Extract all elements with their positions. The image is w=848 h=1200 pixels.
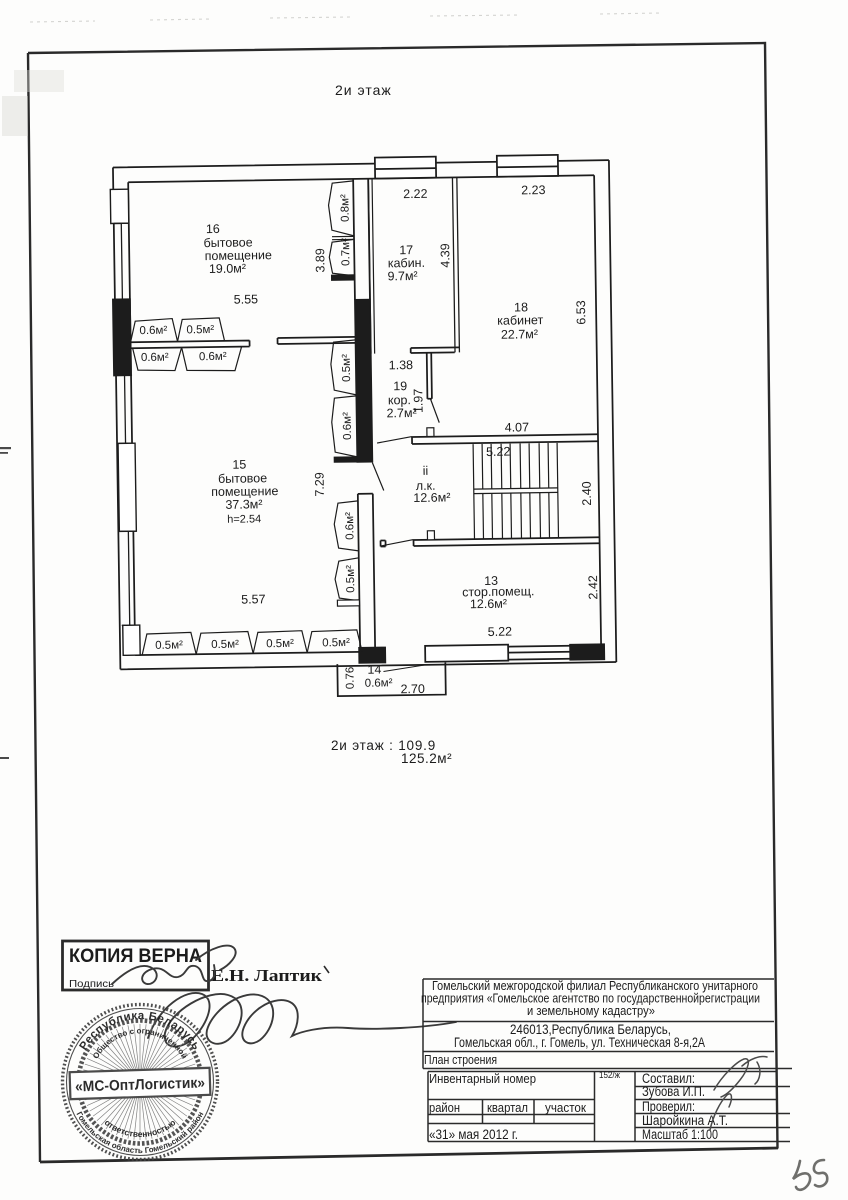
svg-text:5.57: 5.57: [241, 592, 266, 606]
svg-text:район: район: [429, 1100, 460, 1115]
svg-text:участок: участок: [545, 1100, 586, 1115]
svg-text:Подпись: Подпись: [69, 978, 115, 990]
svg-text:4.07: 4.07: [505, 420, 530, 434]
svg-text:0.5м²: 0.5м²: [322, 637, 350, 649]
svg-text:12.6м²: 12.6м²: [413, 490, 450, 505]
svg-text:16: 16: [206, 222, 220, 236]
svg-text:0.6м²: 0.6м²: [139, 325, 167, 337]
svg-text:0.8м²: 0.8м²: [339, 194, 351, 222]
svg-text:5.22: 5.22: [488, 625, 513, 639]
svg-text:22.7м²: 22.7м²: [501, 327, 538, 342]
svg-text:14: 14: [367, 663, 381, 677]
svg-text:0.5м²: 0.5м²: [211, 639, 239, 651]
svg-text:2.22: 2.22: [403, 187, 428, 201]
svg-text:5.22: 5.22: [486, 445, 511, 459]
svg-text:квартал: квартал: [487, 1100, 528, 1115]
svg-text:7.29: 7.29: [312, 472, 326, 497]
svg-text:«31» мая 2012 г.: «31» мая 2012 г.: [429, 1127, 518, 1142]
svg-text:9.7м²: 9.7м²: [387, 269, 417, 283]
svg-text:6.53: 6.53: [574, 300, 588, 325]
svg-text:Гомельская обл., г. Гомель, ул: Гомельская обл., г. Гомель, ул. Техничес…: [454, 1035, 705, 1050]
svg-text:2.70: 2.70: [400, 682, 425, 696]
svg-text:ii: ii: [423, 464, 429, 478]
svg-text:0.6м²: 0.6м²: [344, 512, 356, 540]
svg-text:1.38: 1.38: [389, 358, 414, 372]
svg-text:2и этаж: 2и этаж: [335, 82, 392, 98]
svg-text:0.76: 0.76: [344, 667, 356, 690]
svg-text:КОПИЯ ВЕРНА: КОПИЯ ВЕРНА: [69, 946, 202, 967]
svg-text:Масштаб 1:100: Масштаб 1:100: [642, 1127, 718, 1142]
svg-text:Зубова И.П.: Зубова И.П.: [642, 1084, 705, 1099]
svg-text:19: 19: [393, 379, 407, 393]
svg-text:0.6м²: 0.6м²: [199, 351, 227, 363]
svg-text:0.7м²: 0.7м²: [340, 238, 352, 266]
svg-text:19.0м²: 19.0м²: [209, 261, 246, 276]
svg-text:Е.Н. Лаптик: Е.Н. Лаптик: [211, 966, 322, 985]
svg-text:5.55: 5.55: [234, 292, 259, 306]
svg-text:0.5м²: 0.5м²: [186, 324, 214, 336]
svg-text:152/ж: 152/ж: [599, 1070, 620, 1080]
svg-text:h=2.54: h=2.54: [227, 513, 261, 526]
svg-text:0.5м²: 0.5м²: [155, 639, 183, 651]
svg-text:План строения: План строения: [424, 1052, 497, 1067]
svg-text:2.42: 2.42: [586, 575, 600, 600]
svg-text:кабинет: кабинет: [497, 313, 543, 328]
svg-text:0.5м²: 0.5м²: [345, 565, 357, 593]
svg-text:2.40: 2.40: [580, 481, 594, 506]
svg-text:3.89: 3.89: [313, 248, 327, 273]
svg-text:125.2м²: 125.2м²: [401, 751, 452, 766]
svg-text:37.3м²: 37.3м²: [225, 497, 262, 512]
svg-text:0.5м²: 0.5м²: [341, 354, 353, 382]
svg-text:и земельному кадастру»: и земельному кадастру»: [527, 1003, 655, 1018]
svg-text:Инвентарный номер: Инвентарный номер: [429, 1071, 536, 1086]
svg-text:0.5м²: 0.5м²: [266, 638, 294, 650]
svg-text:15: 15: [232, 458, 246, 472]
svg-text:0.6м²: 0.6м²: [141, 352, 169, 364]
svg-text:12.6м²: 12.6м²: [470, 597, 507, 612]
svg-text:0.6м²: 0.6м²: [342, 412, 354, 440]
svg-text:1.97: 1.97: [411, 389, 425, 414]
svg-text:4.39: 4.39: [438, 243, 452, 268]
svg-text:0.6м²: 0.6м²: [365, 677, 393, 689]
svg-text:Проверил:: Проверил:: [642, 1099, 695, 1114]
svg-text:2.23: 2.23: [521, 183, 546, 197]
